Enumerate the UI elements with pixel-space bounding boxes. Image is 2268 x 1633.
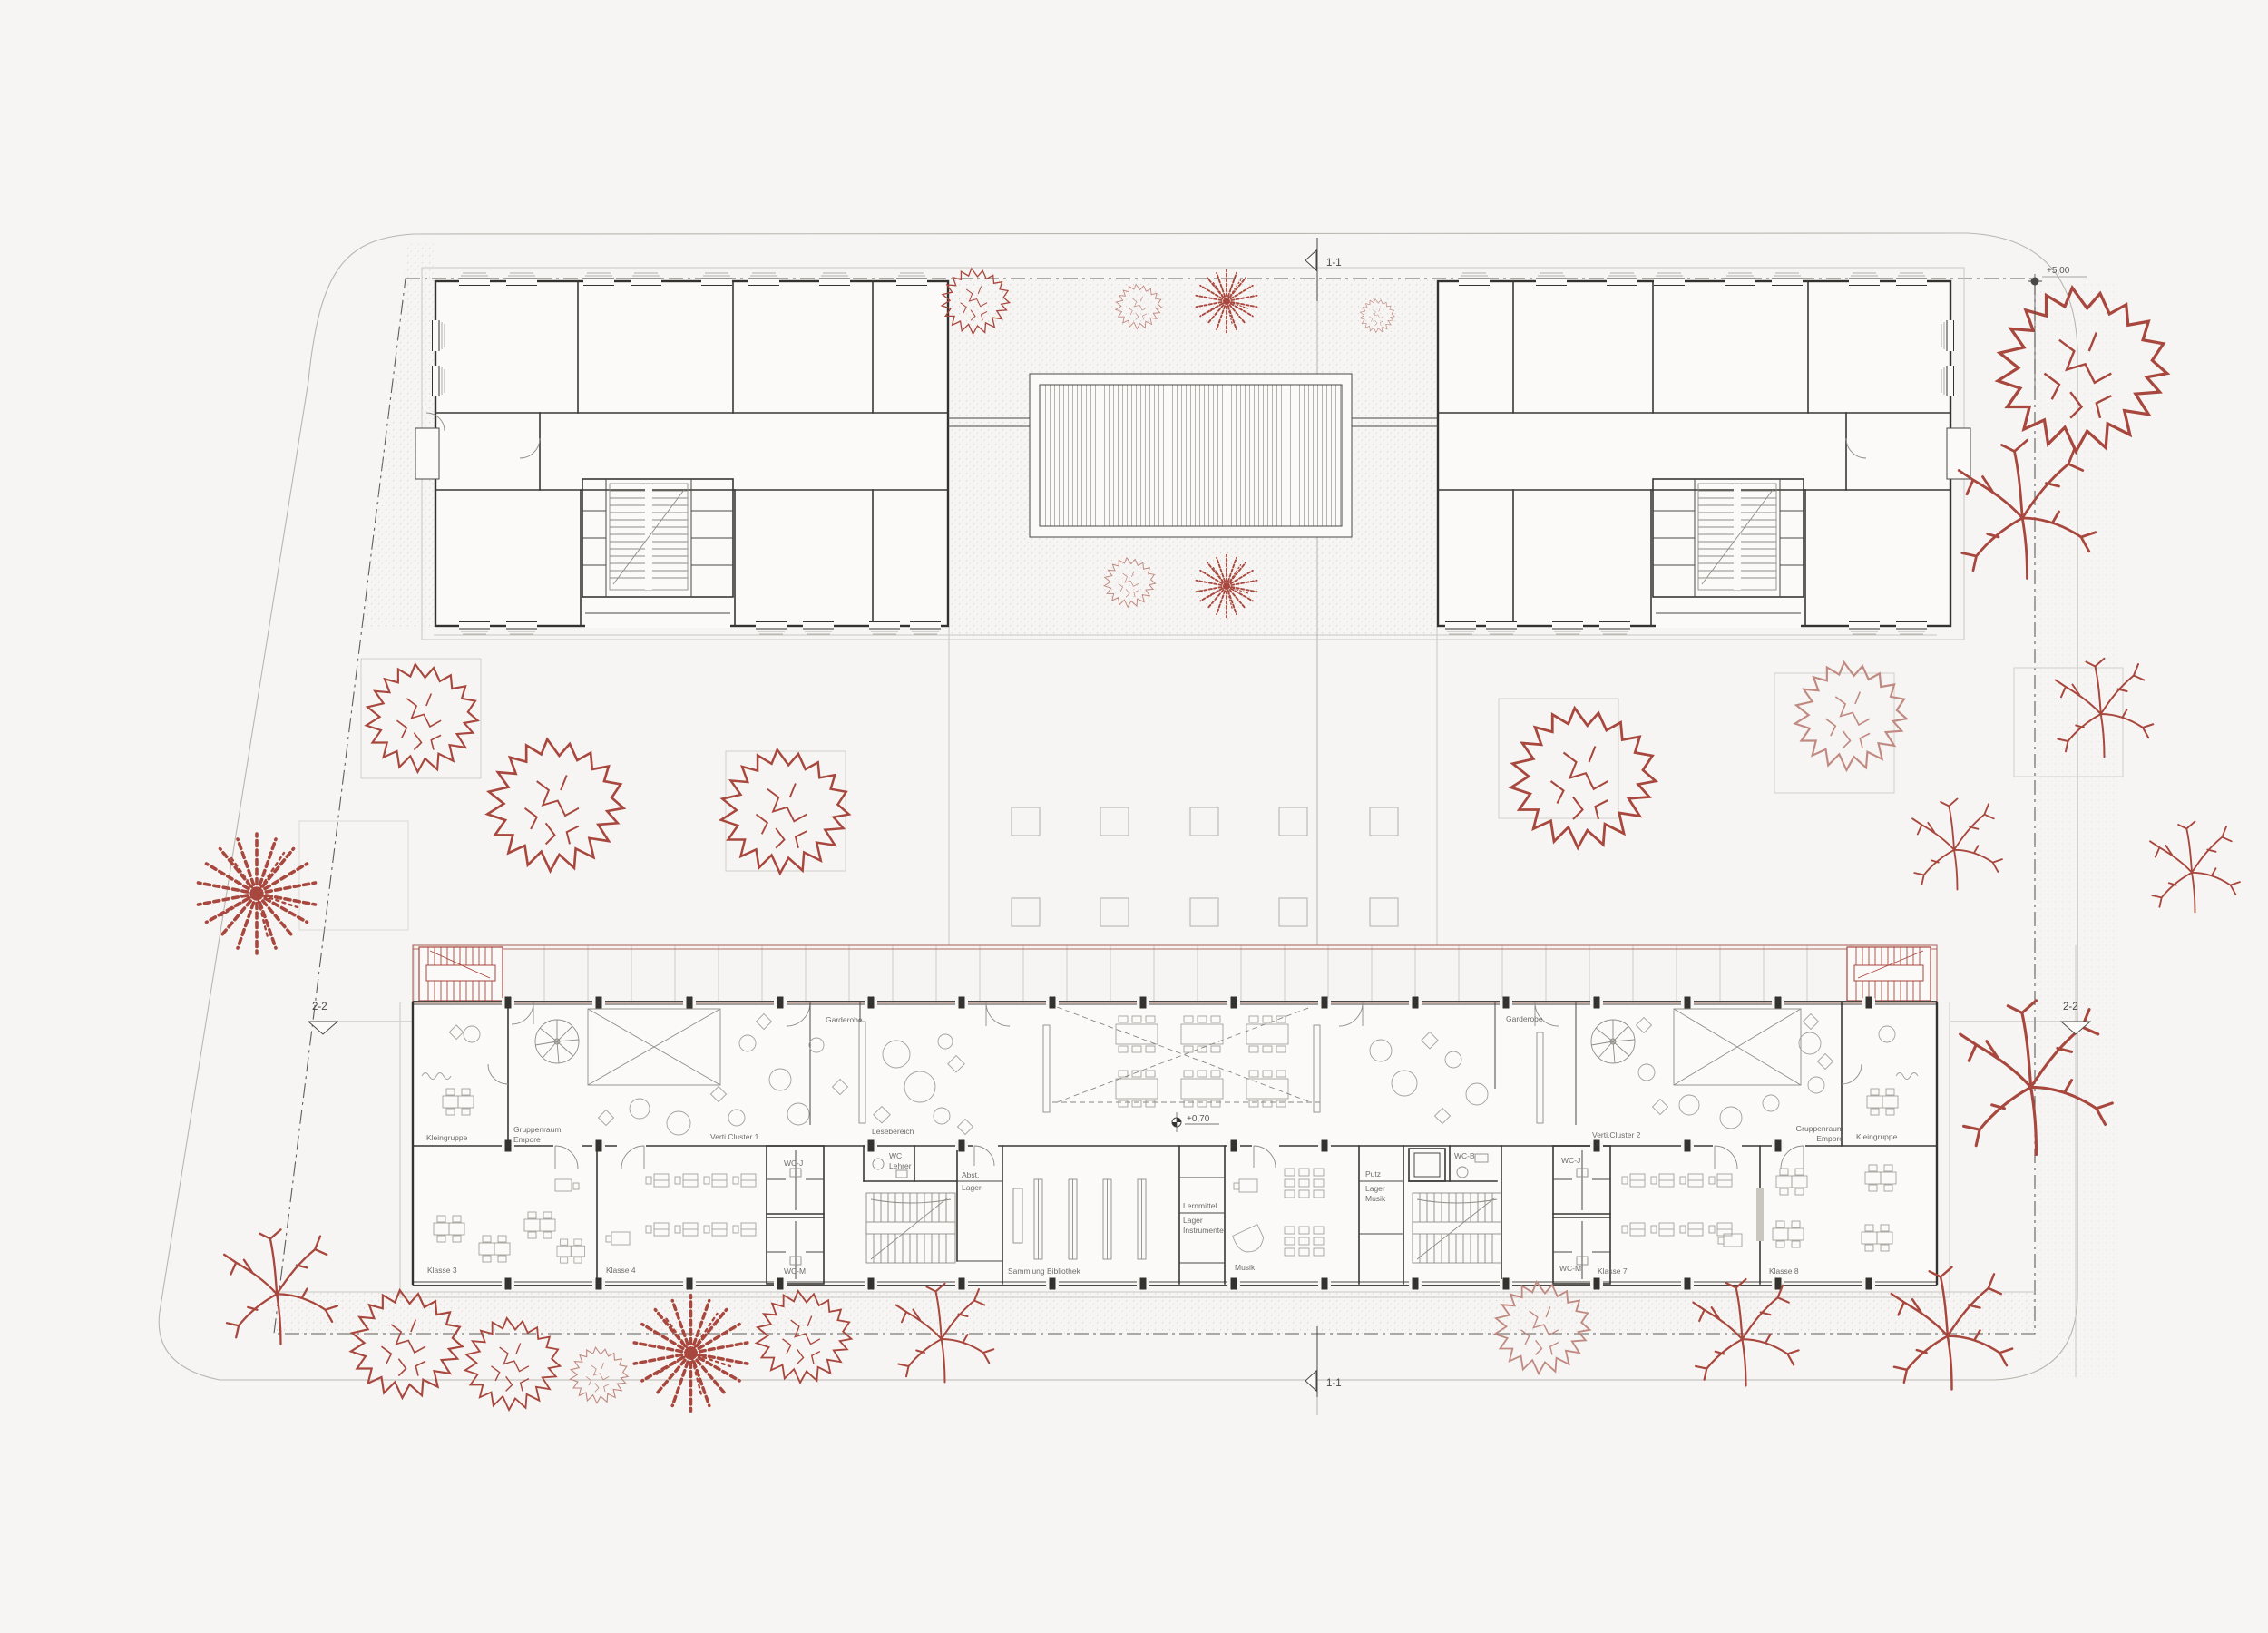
room-label-garderobe-right: Garderobe [1506,1014,1543,1023]
room-label-lesebereich: Lesebereich [872,1127,914,1136]
room-label-klasse-4: Klasse 4 [606,1266,636,1275]
room-label-wc-lehrer-2: Lehrer [889,1161,912,1170]
room-label-lager: Lager [962,1183,982,1192]
planters [299,659,2123,930]
room-label-wc-j-right: WC-J [1561,1156,1580,1165]
room-label-lager-instrumente-2: Instrumente [1183,1226,1224,1235]
site-elevation-label: +5,00 [2047,266,2070,276]
floor-elevation-label: +0,70 [1187,1114,1210,1124]
section-label-1-1-top: 1-1 [1326,258,1342,269]
room-label-wc-m-right: WC-M [1559,1264,1581,1273]
room-label-klasse-8: Klasse 8 [1769,1266,1799,1276]
section-marker-2-2-left: 2-2 [308,1002,337,1034]
room-label-wc-m-left: WC-M [784,1266,806,1276]
plaza-planters [1012,807,1398,926]
room-label-bibliothek: Sammlung Bibliothek [1008,1266,1081,1276]
room-label-wc-j-left: WC-J [784,1159,803,1168]
section-marker-1-1-bottom: 1-1 [1305,1326,1342,1397]
room-label-kleingruppe-left: Kleingruppe [426,1133,468,1142]
section-label-2-2-left: 2-2 [312,1002,327,1012]
room-label-empore-left: Empore [513,1135,541,1144]
section-label-2-2-right: 2-2 [2063,1002,2078,1012]
floor-plan-canvas: 1-1 1-1 2-2 2-2 +5,00 +0,70 Kleingruppe … [0,0,2268,1633]
floor-plan-drawing: 1-1 1-1 2-2 2-2 +5,00 +0,70 Kleingruppe … [0,0,2268,1633]
room-label-verti-cluster-2: Verti.Cluster 2 [1592,1130,1641,1139]
room-label-wc-b: WC-B [1454,1151,1475,1160]
room-label-klasse-7: Klasse 7 [1598,1266,1628,1276]
room-label-wc-lehrer-1: WC [889,1151,902,1160]
room-label-abst: Abst. [962,1170,979,1179]
room-label-lager-musik-2: Musik [1365,1194,1386,1203]
room-label-musik: Musik [1235,1263,1256,1272]
lower-building [400,945,1950,1297]
room-label-gruppenraum-right: Gruppenraum [1796,1124,1843,1133]
room-label-empore-right: Empore [1816,1134,1843,1143]
room-label-gruppenraum-left: Gruppenraum [513,1125,561,1134]
room-label-lager-instrumente-1: Lager [1183,1216,1203,1225]
room-label-garderobe-left: Garderobe [826,1015,863,1024]
upper-level-gallery [413,945,1937,1002]
room-label-lager-musik-1: Lager [1365,1184,1385,1193]
room-label-putz: Putz [1365,1169,1381,1178]
section-label-1-1-bottom: 1-1 [1326,1378,1342,1389]
room-label-klasse-3: Klasse 3 [427,1266,457,1275]
room-label-lernmittel: Lernmittel [1183,1201,1217,1210]
room-label-kleingruppe-right: Kleingruppe [1856,1132,1898,1141]
exterior-stair-west [419,947,503,1001]
room-label-verti-cluster-1: Verti.Cluster 1 [710,1132,759,1141]
exterior-stair-east [1847,947,1931,1001]
